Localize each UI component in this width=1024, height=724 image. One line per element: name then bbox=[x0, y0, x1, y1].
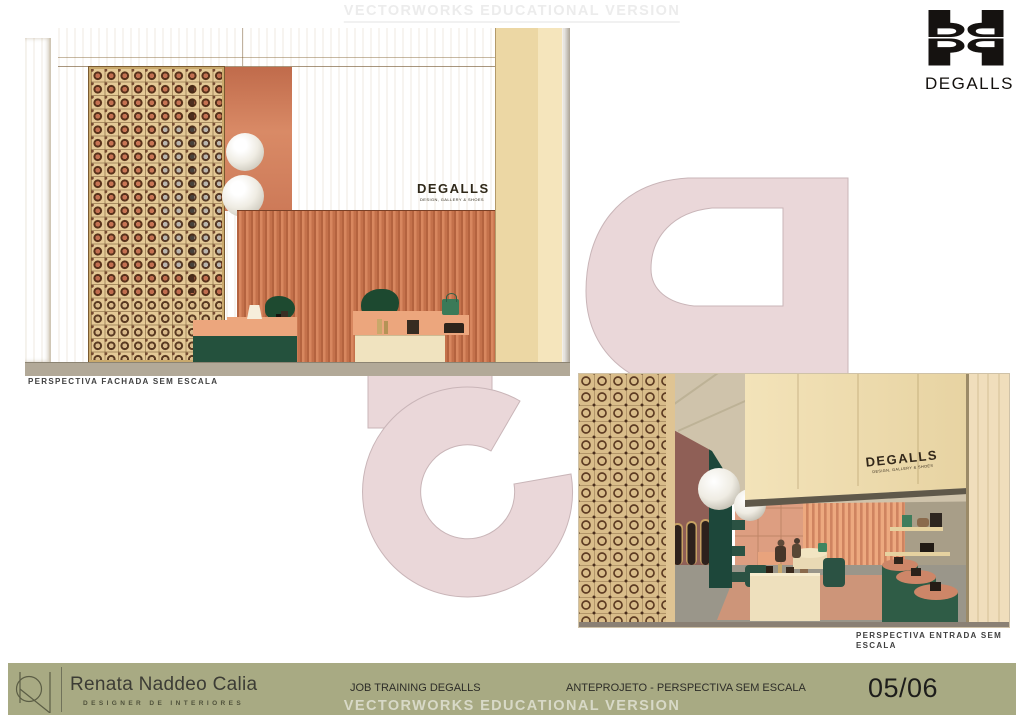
screen-edge-wood bbox=[666, 373, 675, 628]
handbag-handle bbox=[446, 293, 457, 302]
dark-display-item bbox=[407, 320, 419, 334]
facade-joint-line bbox=[242, 28, 243, 66]
wood-pilaster bbox=[969, 373, 1010, 622]
educational-watermark-top: VECTORWORKS EDUCATIONAL VERSION bbox=[344, 3, 680, 23]
pilaster-shadow bbox=[966, 373, 969, 622]
designer-title: DESIGNER DE INTERIORES bbox=[83, 700, 244, 707]
designer-name: Renata Naddeo Calia bbox=[70, 674, 257, 696]
facade-render: DEGALLS DESIGN, GALLERY & SHOES bbox=[25, 28, 570, 375]
display-tier-top bbox=[193, 320, 227, 336]
facade-caption: PERSPECTIVA FACHADA SEM ESCALA bbox=[28, 377, 218, 387]
mannequin-niches bbox=[672, 519, 711, 565]
wall-shelf bbox=[890, 527, 943, 531]
project-label: JOB TRAINING DEGALLS bbox=[350, 682, 481, 694]
sign-subtitle: DESIGN, GALLERY & SHOES bbox=[417, 197, 487, 202]
wood-pilaster bbox=[495, 28, 539, 362]
counter-base bbox=[227, 336, 297, 362]
display-tier-base bbox=[193, 336, 227, 362]
cream-display-table bbox=[750, 573, 820, 621]
green-pouf bbox=[823, 558, 845, 587]
decorative-screen bbox=[578, 373, 666, 628]
entrance-render: DEGALLS DESIGN, GALLERY & SHOES bbox=[578, 373, 1010, 628]
wall-shelf bbox=[885, 552, 950, 556]
sphere-lamp bbox=[226, 133, 264, 171]
shelf-bag-green bbox=[902, 515, 912, 527]
person-head bbox=[778, 540, 785, 547]
bottle bbox=[377, 319, 382, 334]
storefront-sign: DEGALLS DESIGN, GALLERY & SHOES bbox=[417, 181, 487, 202]
degalls-monogram-icon bbox=[928, 10, 1004, 67]
designer-monogram-icon bbox=[14, 669, 58, 713]
counter-item bbox=[281, 311, 288, 317]
decorative-screen bbox=[89, 67, 224, 362]
entrance-caption: PERSPECTIVA ENTRADA SEM ESCALA bbox=[856, 631, 1002, 651]
brand-logo-block: DEGALLS bbox=[925, 10, 1007, 94]
entrance-caption-line2: ESCALA bbox=[856, 641, 1002, 651]
stage-label: ANTEPROJETO - PERSPECTIVA SEM ESCALA bbox=[566, 682, 806, 694]
green-handbag bbox=[818, 543, 827, 552]
footer-divider bbox=[61, 667, 62, 712]
screen-lattice-pattern bbox=[91, 69, 222, 360]
edge-shadow bbox=[562, 28, 570, 362]
person-head bbox=[794, 538, 800, 544]
presentation-sheet: VECTORWORKS EDUCATIONAL VERSION bbox=[0, 0, 1024, 724]
shelf-hat bbox=[917, 518, 929, 527]
shelf-bag-dark bbox=[930, 513, 942, 527]
wood-side-strip bbox=[25, 38, 51, 362]
sidewalk bbox=[25, 362, 570, 376]
brand-wordmark: DEGALLS bbox=[925, 74, 1007, 94]
hanging-wood-panel bbox=[745, 373, 968, 500]
educational-watermark-bottom: VECTORWORKS EDUCATIONAL VERSION bbox=[344, 698, 680, 718]
page-number: 05/06 bbox=[868, 673, 938, 704]
shelf-shoe bbox=[920, 543, 934, 552]
sphere-lamp bbox=[698, 468, 740, 510]
sign-title: DEGALLS bbox=[417, 181, 487, 196]
bottle bbox=[384, 321, 388, 334]
entrance-caption-line1: PERSPECTIVA ENTRADA SEM bbox=[856, 631, 1002, 641]
person-body bbox=[792, 544, 801, 558]
shoes-display bbox=[444, 323, 464, 333]
facade-joint-line bbox=[58, 57, 562, 58]
display-table-cream bbox=[355, 335, 445, 363]
table-top-edge bbox=[750, 573, 820, 576]
display-table-tier bbox=[353, 311, 445, 335]
person-body bbox=[775, 546, 786, 562]
wood-outer-strip bbox=[538, 28, 562, 362]
counter-top bbox=[227, 317, 297, 336]
column-cubes bbox=[732, 520, 745, 582]
